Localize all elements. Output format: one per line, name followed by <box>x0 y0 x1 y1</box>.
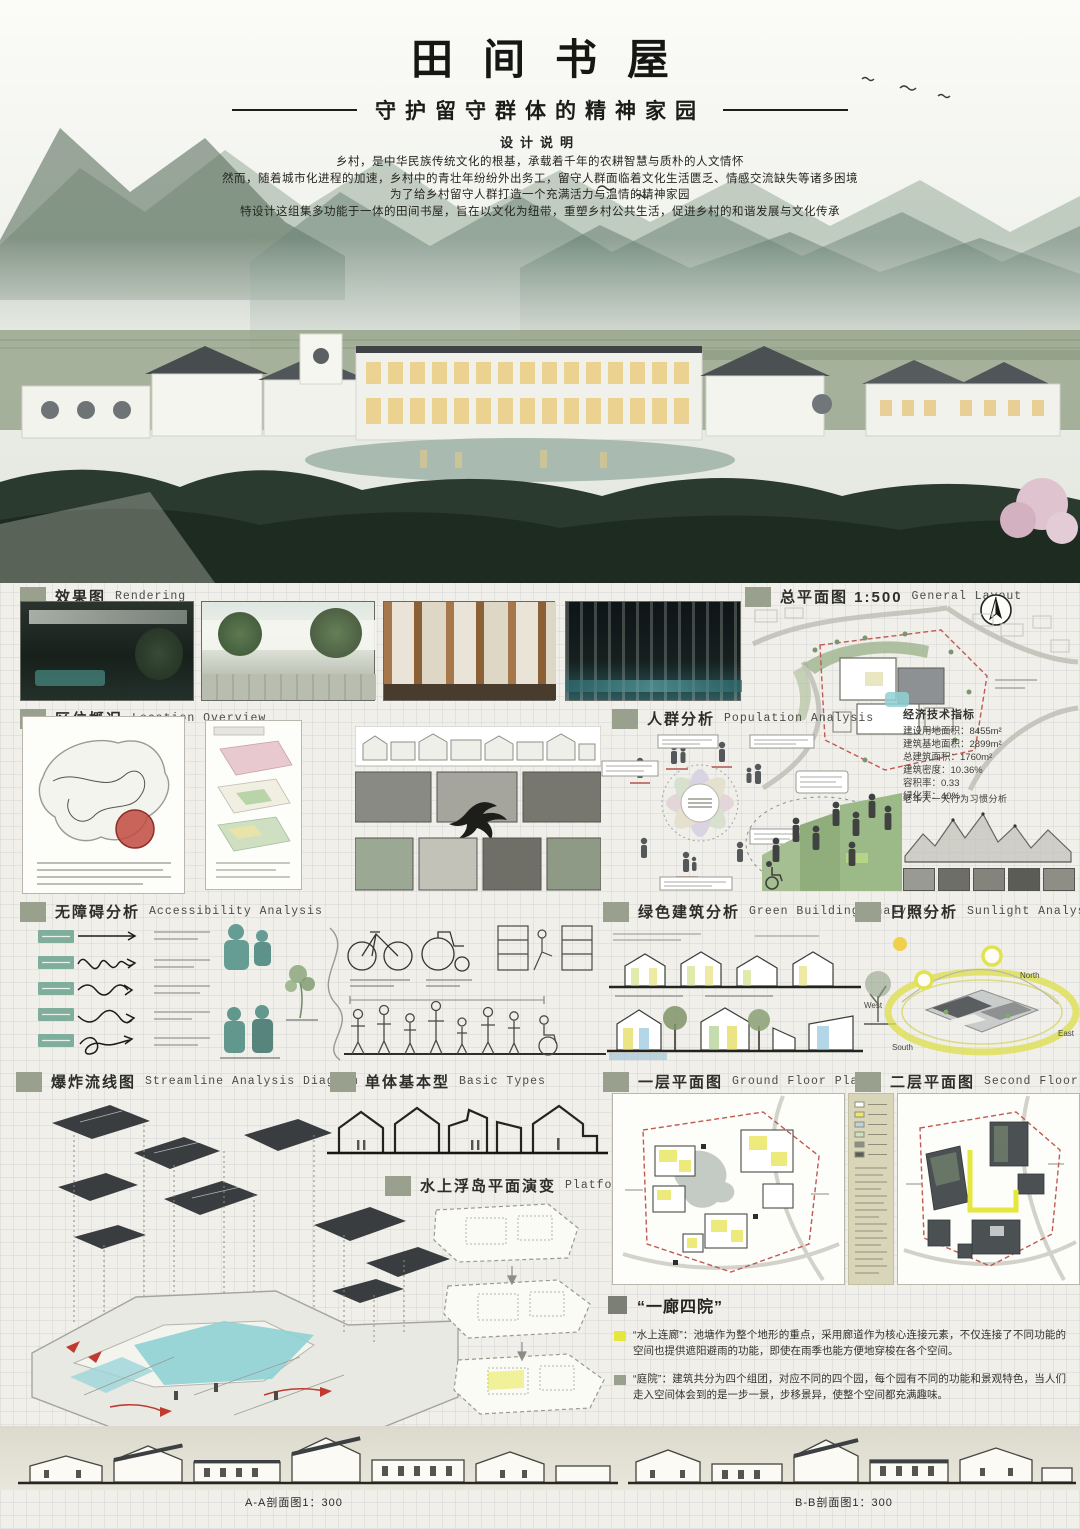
caregiver-sketch-bottom <box>224 1005 273 1053</box>
section-marker-icon <box>20 902 46 922</box>
compass-label-south: South <box>892 1043 913 1052</box>
concept-item-text: “庭院”：建筑共分为四个组团，对应不同的四个园，每个园有不同的功能和景观特色，当… <box>633 1372 1066 1403</box>
elderly-behavior-chart <box>903 804 1075 864</box>
section-elevation-b <box>628 1426 1076 1490</box>
indicator-line: 总建筑面积：1760m² <box>903 751 1055 764</box>
reach-range-sketch <box>498 926 592 970</box>
platform-evolution-diagram <box>428 1200 610 1422</box>
section-title-zh: 无障碍分析 <box>55 901 140 922</box>
indicator-line: 容积率：0.33 <box>903 777 1055 790</box>
gray-bullet-icon <box>614 1375 626 1385</box>
intro-line: 乡村，是中华民族传统文化的根基，承载着千年的农耕智慧与质朴的人文情怀 <box>0 154 1080 171</box>
photo-strip-item <box>973 868 1005 891</box>
subtitle-rule-right <box>723 109 848 111</box>
section-title-en: Ground Floor Plan <box>732 1075 866 1088</box>
indicators-title: 经济技术指标 <box>903 706 1055 722</box>
section-header-streamline: 爆炸流线图 Streamline Analysis Diagram <box>16 1071 358 1092</box>
section-title-en: Sunlight Analysis <box>967 905 1080 918</box>
rendering-thumbnail-2 <box>201 601 375 701</box>
section-marker-icon <box>603 902 629 922</box>
pond <box>305 438 735 482</box>
section-title-zh: 人群分析 <box>647 708 715 729</box>
yellow-bullet-icon <box>614 1331 626 1341</box>
plant-sketch <box>285 965 318 1020</box>
anthropometry-lineup <box>344 996 606 1055</box>
poster-title: 田间书屋 <box>0 26 1080 87</box>
concept-item-corridor: “水上连廊”：池塘作为整个地形的重点，采用廊道作为核心连接元素，不仅连接了不同功… <box>614 1328 1066 1359</box>
section-title-zh: 二层平面图 <box>890 1071 975 1092</box>
compass-label-east: East <box>1058 1029 1075 1038</box>
section-marker-icon <box>330 1072 356 1092</box>
section-title-zh: 爆炸流线图 <box>51 1071 136 1092</box>
section-marker-icon <box>16 1072 42 1092</box>
intro-line: 然而，随着城市化进程的加速，乡村中的青壮年纷纷外出务工，留守人群面临着文化生活匮… <box>0 171 1080 188</box>
presentation-board: 田间书屋 守护留守群体的精神家园 设计说明 乡村，是中华民族传统文化的根基，承载… <box>0 0 1080 1529</box>
section-marker-icon <box>603 1072 629 1092</box>
sunlight-diagram: North West South East <box>862 918 1080 1066</box>
compass-label-north: North <box>1020 971 1040 980</box>
rendering-thumbnail-3 <box>383 601 555 701</box>
section-marker-icon <box>385 1176 411 1196</box>
indicator-line: 建筑密度：10.36% <box>903 764 1055 777</box>
section-title-zh: 绿色建筑分析 <box>638 901 740 922</box>
ground-floor-plan <box>613 1094 844 1284</box>
section-a-label: A-A剖面图1：300 <box>245 1494 343 1510</box>
second-floor-plan <box>898 1094 1079 1284</box>
population-diagram <box>600 733 905 895</box>
ground-floor-plan-card <box>612 1093 845 1285</box>
intro-line: 特设计这组集多功能于一体的田间书屋，旨在以文化为纽带，重塑乡村公共生活，促进乡村… <box>0 204 1080 221</box>
green-building-sections <box>605 928 865 1062</box>
site-layers-diagram <box>206 721 301 889</box>
photo-strip-item <box>1008 868 1040 891</box>
photo-strip-item <box>903 868 935 891</box>
concept-item-text: “水上连廊”：池塘作为整个地形的重点，采用廊道作为核心连接元素，不仅连接了不同功… <box>633 1328 1066 1359</box>
section-marker-icon <box>612 709 638 729</box>
intro-heading: 设计说明 <box>0 132 1080 151</box>
photo-strip-item <box>938 868 970 891</box>
section-marker-icon <box>608 1296 627 1314</box>
section-header-accessibility: 无障碍分析 Accessibility Analysis <box>20 901 323 922</box>
sun-icon <box>893 937 907 951</box>
section-title-en: Second Floor Plan <box>984 1075 1080 1088</box>
section-marker-icon <box>855 1072 881 1092</box>
section-header-population: 人群分析 Population Analysis <box>612 708 874 729</box>
rendering-thumbnail-4 <box>565 601 741 701</box>
basic-types-diagram <box>325 1096 610 1166</box>
section-title-en: Population Analysis <box>724 712 874 725</box>
section-title-zh: 一层平面图 <box>638 1071 723 1092</box>
concept-heading: “一廊四院” <box>608 1293 723 1317</box>
concept-title: “一廊四院” <box>637 1293 723 1317</box>
section-title-en: Basic Types <box>459 1075 546 1088</box>
bicycle-sketch <box>348 932 412 970</box>
subtitle-rule-left <box>232 109 357 111</box>
section-title-en: Accessibility Analysis <box>149 905 323 918</box>
section-title-zh: 单体基本型 <box>365 1071 450 1092</box>
section-header-ground-floor: 一层平面图 Ground Floor Plan <box>603 1071 866 1092</box>
section-elevation-a <box>18 1426 618 1490</box>
building-axon-model <box>926 990 1038 1032</box>
photo-strip-item <box>1043 868 1075 891</box>
intro-line: 为了给乡村留守人群打造一个充满活力与温情的精神家园 <box>0 187 1080 204</box>
site-diagrams-card <box>205 720 302 890</box>
china-map-sketch <box>23 717 184 893</box>
second-floor-plan-card <box>897 1093 1080 1285</box>
section-b-label: B-B剖面图1：300 <box>795 1494 893 1510</box>
section-header-second-floor: 二层平面图 Second Floor Plan <box>855 1071 1080 1092</box>
caregiver-sketch-top <box>224 924 271 970</box>
path-arrows <box>78 932 135 1054</box>
indicator-line: 建设用地面积：8455m² <box>903 725 1055 738</box>
compass-label-west: West <box>864 1001 883 1010</box>
rendering-thumbnail-1 <box>20 601 194 701</box>
section-title-en: Streamline Analysis Diagram <box>145 1075 358 1088</box>
concept-item-courtyard: “庭院”：建筑共分为四个组团，对应不同的四个园，每个园有不同的功能和景观特色，当… <box>614 1372 1066 1403</box>
accessibility-diagram <box>14 922 606 1064</box>
description-stubs <box>154 932 210 1045</box>
indicator-line: 建筑基地面积：2899m² <box>903 738 1055 751</box>
wheelchair-sketch <box>422 932 469 971</box>
poster-subtitle: 守护留守群体的精神家园 <box>375 95 705 125</box>
section-header-basic-types: 单体基本型 Basic Types <box>330 1071 546 1092</box>
context-photo-collage <box>355 726 601 896</box>
location-map-card <box>22 716 185 894</box>
plan-legend-strip <box>848 1093 894 1285</box>
title-block: 田间书屋 守护留守群体的精神家园 设计说明 乡村，是中华民族传统文化的根基，承载… <box>0 26 1080 220</box>
section-title-zh: 水上浮岛平面演变 <box>420 1175 556 1196</box>
economic-indicators: 经济技术指标 建设用地面积：8455m² 建筑基地面积：2899m² 总建筑面积… <box>903 706 1055 803</box>
floating-roofs <box>52 1105 332 1249</box>
